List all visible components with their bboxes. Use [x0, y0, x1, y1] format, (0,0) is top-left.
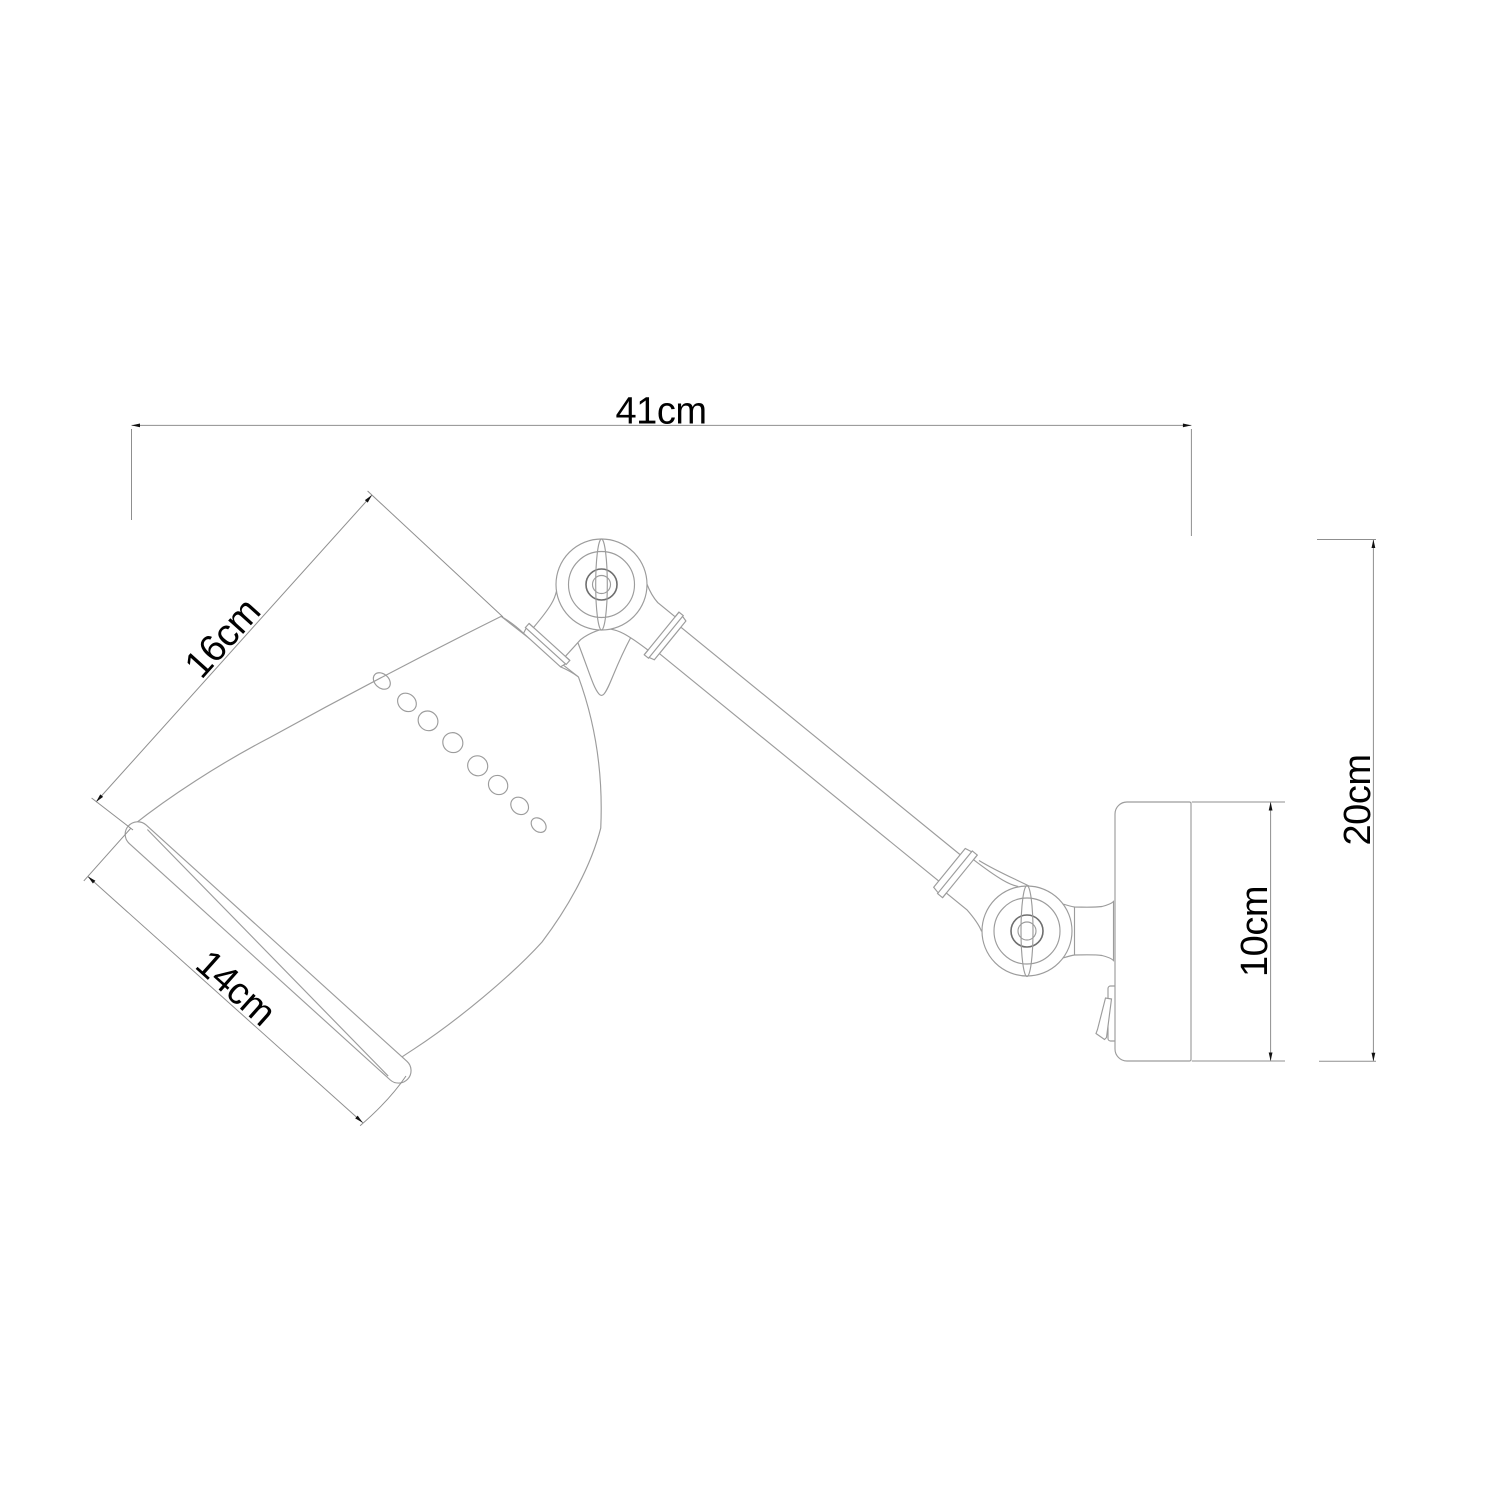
svg-text:20cm: 20cm — [1337, 755, 1379, 846]
svg-text:41cm: 41cm — [616, 391, 707, 433]
svg-text:10cm: 10cm — [1234, 886, 1276, 977]
